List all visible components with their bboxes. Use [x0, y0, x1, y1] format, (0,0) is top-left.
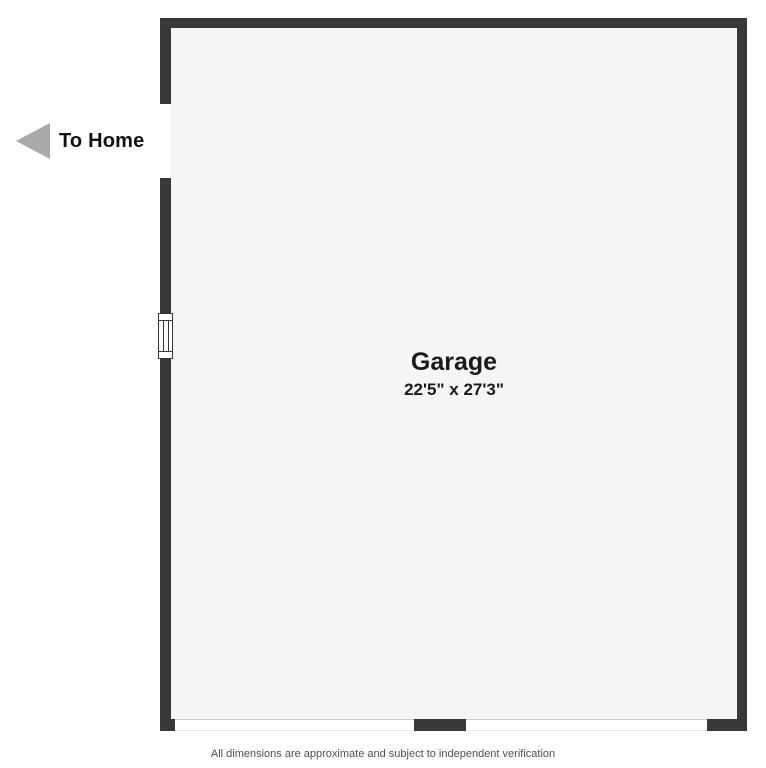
wall-left-lower: [160, 359, 171, 719]
arrow-left-icon: [16, 123, 50, 159]
wall-bottom-right-corner: [707, 719, 747, 731]
room-label: Garage 22'5" x 27'3": [171, 349, 737, 400]
disclaimer-text: All dimensions are approximate and subje…: [0, 748, 766, 760]
wall-top: [160, 18, 747, 28]
window-pane: [163, 321, 169, 351]
wall-bottom-left-corner: [160, 719, 175, 731]
door-opening-to-home: [160, 104, 171, 178]
to-home-link[interactable]: To Home: [16, 122, 144, 160]
wall-right: [737, 28, 747, 719]
room-dimensions: 22'5" x 27'3": [171, 380, 737, 400]
wall-left-middle: [160, 178, 171, 313]
wall-bottom-center-pier: [414, 719, 466, 731]
floorplan-canvas: To Home Garage 22'5" x 27'3" All dimensi…: [0, 0, 766, 768]
wall-left-upper: [160, 28, 171, 104]
to-home-label: To Home: [59, 130, 144, 153]
room-name: Garage: [171, 349, 737, 377]
